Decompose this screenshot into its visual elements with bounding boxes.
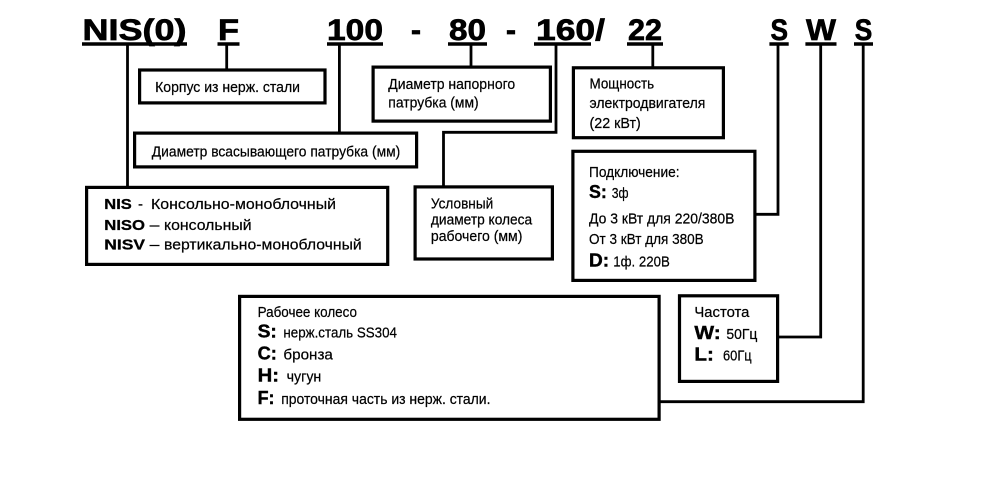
svg-text:1ф. 220В: 1ф. 220В bbox=[613, 254, 670, 271]
svg-text:80: 80 bbox=[449, 14, 486, 47]
svg-text:50Гц: 50Гц bbox=[726, 326, 757, 343]
svg-text:проточная часть из нерж. стали: проточная часть из нерж. стали. bbox=[281, 391, 490, 408]
svg-text:NISV: NISV bbox=[104, 237, 145, 254]
svg-text:Мощность: Мощность bbox=[590, 75, 655, 92]
svg-text:Рабочее колесо: Рабочее колесо bbox=[258, 304, 357, 321]
svg-text:100: 100 bbox=[327, 14, 383, 47]
svg-text:F:: F: bbox=[258, 388, 275, 408]
svg-text:NIS(0): NIS(0) bbox=[83, 14, 187, 47]
svg-text:От 3 кВт для 380В: От 3 кВт для 380В bbox=[589, 231, 704, 248]
svg-text:Диаметр всасывающего патрубка: Диаметр всасывающего патрубка (мм) bbox=[152, 143, 400, 160]
svg-text:электродвигателя: электродвигателя bbox=[590, 95, 706, 112]
svg-text:-: - bbox=[506, 14, 516, 47]
svg-text:бронза: бронза bbox=[283, 346, 333, 363]
svg-text:160/: 160/ bbox=[536, 14, 606, 47]
svg-text:диаметр колеса: диаметр колеса bbox=[431, 212, 533, 229]
svg-text:чугун: чугун bbox=[287, 369, 322, 386]
svg-text:F: F bbox=[218, 14, 239, 47]
svg-text:–: – bbox=[150, 217, 161, 234]
svg-text:-: - bbox=[411, 14, 421, 47]
svg-text:Подключение:: Подключение: bbox=[589, 164, 680, 181]
svg-text:22: 22 bbox=[628, 14, 662, 47]
svg-text:S: S bbox=[771, 14, 789, 47]
svg-text:вертикально-моноблочный: вертикально-моноблочный bbox=[164, 237, 362, 254]
svg-text:D:: D: bbox=[589, 251, 609, 271]
svg-text:рабочего (мм): рабочего (мм) bbox=[431, 228, 523, 245]
svg-text:H:: H: bbox=[258, 366, 279, 386]
svg-text:Корпус из нерж. стали: Корпус из нерж. стали bbox=[155, 79, 300, 96]
svg-text:C:: C: bbox=[258, 343, 277, 363]
svg-text:патрубка (мм): патрубка (мм) bbox=[388, 94, 478, 111]
svg-text:Частота: Частота bbox=[694, 304, 750, 321]
svg-text:60Гц: 60Гц bbox=[723, 348, 752, 365]
svg-text:W:: W: bbox=[694, 323, 720, 343]
svg-text:Диаметр напорного: Диаметр напорного bbox=[388, 76, 515, 93]
svg-text:-: - bbox=[138, 196, 143, 213]
svg-text:S: S bbox=[855, 14, 873, 47]
svg-text:NISO: NISO bbox=[104, 217, 145, 234]
svg-text:3ф: 3ф bbox=[612, 185, 629, 202]
svg-text:Консольно-моноблочный: Консольно-моноблочный bbox=[151, 196, 336, 213]
svg-text:нерж.сталь SS304: нерж.сталь SS304 bbox=[283, 325, 397, 342]
svg-text:До 3 кВт для 220/380В: До 3 кВт для 220/380В bbox=[589, 210, 734, 227]
svg-text:NIS: NIS bbox=[104, 196, 132, 213]
svg-text:L:: L: bbox=[694, 345, 714, 365]
svg-text:W: W bbox=[806, 14, 837, 47]
svg-text:–: – bbox=[150, 237, 161, 254]
svg-text:S:: S: bbox=[589, 182, 607, 202]
svg-text:консольный: консольный bbox=[164, 217, 252, 234]
svg-text:S:: S: bbox=[258, 322, 277, 342]
svg-text:Условный: Условный bbox=[431, 195, 493, 212]
svg-text:(22 кВт): (22 кВт) bbox=[590, 115, 641, 132]
